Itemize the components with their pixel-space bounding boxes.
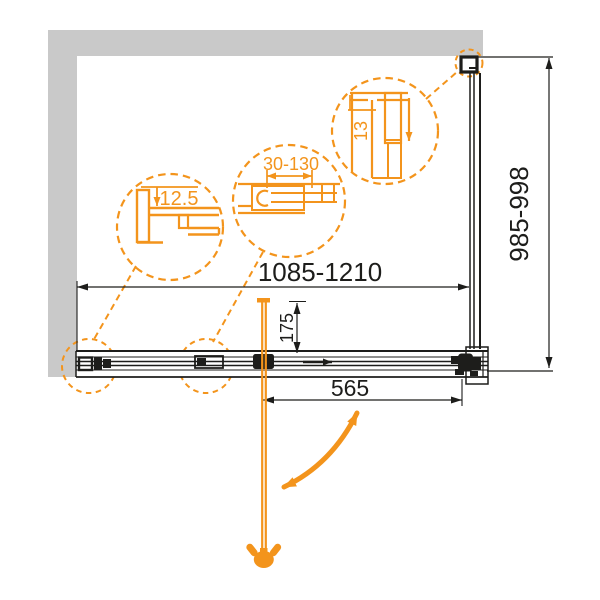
shower-enclosure-drawing: 12.5 30-130 [0,0,600,600]
adjustment-profile-section [238,184,340,213]
door-handle [245,542,283,568]
dim-handle-offset-label: 175 [277,313,297,343]
dim-width-label: 1085-1210 [258,257,382,287]
top-wall-profile [461,57,477,72]
bottom-track [76,347,488,384]
detail-label-top-profile: 13 [351,121,371,141]
dim-handle-offset: 175 [277,302,306,354]
leader-line-top-profile [426,72,457,99]
dim-door-width: 565 [263,375,462,406]
dim-width: 1085-1210 [77,257,469,350]
detail-label-wall-profile: 12.5 [160,188,199,210]
technical-drawing-canvas: 12.5 30-130 [0,0,600,600]
door-top-cap [257,298,270,303]
leader-line-wall-profile [93,266,136,341]
detail-circle-wall-profile: 12.5 [117,174,223,280]
swing-direction-arrow-icon [284,413,357,487]
dim-door-width-label: 565 [331,375,369,401]
detail-target-markers [62,50,483,394]
dim-height: 985-998 [477,57,553,371]
door-pivot-block [253,354,274,369]
dim-height-label: 985-998 [504,166,534,261]
side-panel [461,57,480,349]
detail-circle-top-profile: 13 [332,78,438,184]
leader-line-adjustment [213,252,263,342]
detail-label-adjustment: 30-130 [263,154,319,174]
detail-circle-adjustment: 30-130 [233,145,345,257]
